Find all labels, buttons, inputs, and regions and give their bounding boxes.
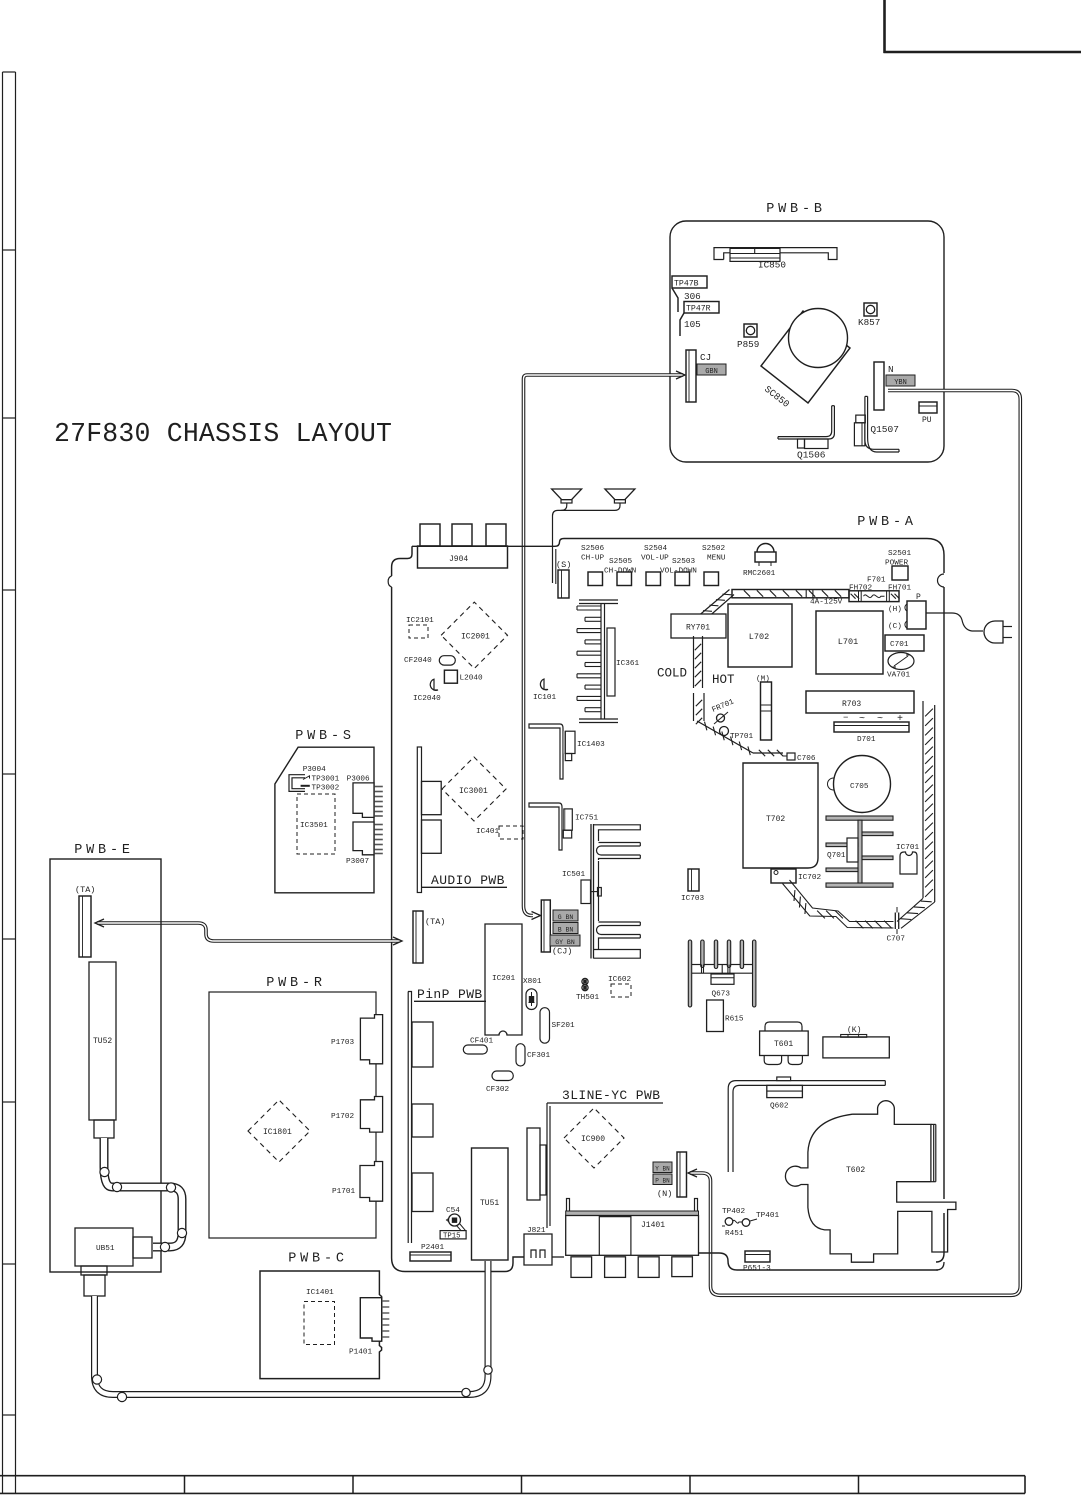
svg-text:CF302: CF302 <box>486 1086 509 1094</box>
svg-text:P859: P859 <box>737 339 759 350</box>
svg-text:IC401: IC401 <box>476 828 499 836</box>
svg-text:P2401: P2401 <box>421 1244 444 1252</box>
svg-text:R615: R615 <box>725 1016 744 1024</box>
svg-text:S2504: S2504 <box>644 545 667 553</box>
svg-text:P1701: P1701 <box>332 1188 355 1196</box>
svg-text:105: 105 <box>684 319 701 330</box>
svg-text:P651-3: P651-3 <box>743 1265 771 1273</box>
svg-text:Q1506: Q1506 <box>797 450 826 461</box>
svg-text:HOT: HOT <box>712 673 735 687</box>
svg-text:J1401: J1401 <box>641 1221 665 1230</box>
svg-text:+: + <box>897 714 903 725</box>
svg-text:X801: X801 <box>523 978 542 986</box>
svg-text:IC602: IC602 <box>608 976 631 984</box>
svg-text:TU51: TU51 <box>480 1199 499 1208</box>
svg-text:(S): (S) <box>556 560 571 570</box>
svg-text:TP47R: TP47R <box>686 305 711 314</box>
svg-text:PinP PWB: PinP PWB <box>417 987 483 1002</box>
svg-text:GY BN: GY BN <box>555 939 575 946</box>
svg-text:(K): (K) <box>847 1026 861 1035</box>
svg-text:P3007: P3007 <box>346 858 369 866</box>
svg-text:IC1403: IC1403 <box>577 741 605 749</box>
svg-text:Q673: Q673 <box>712 991 731 999</box>
svg-text:IC900: IC900 <box>581 1135 605 1144</box>
svg-text:(N): (N) <box>657 1189 672 1199</box>
svg-text:L702: L702 <box>749 632 769 642</box>
svg-text:K857: K857 <box>858 317 880 328</box>
svg-text:TP47B: TP47B <box>674 280 699 289</box>
svg-text:IC702: IC702 <box>798 874 821 882</box>
svg-text:IC1801: IC1801 <box>263 1128 292 1137</box>
svg-text:(TA): (TA) <box>75 885 95 895</box>
svg-text:S2501: S2501 <box>888 550 911 558</box>
svg-text:VA701: VA701 <box>887 672 910 680</box>
svg-text:IC3501: IC3501 <box>300 822 328 830</box>
svg-text:(C): (C) <box>888 623 902 631</box>
svg-text:T602: T602 <box>846 1166 865 1175</box>
svg-text:Q602: Q602 <box>770 1103 789 1111</box>
svg-text:S2505: S2505 <box>609 558 632 566</box>
svg-text:Q1507: Q1507 <box>870 424 899 435</box>
svg-text:(CJ): (CJ) <box>552 947 572 957</box>
svg-text:L701: L701 <box>838 637 858 647</box>
svg-text:IC201: IC201 <box>492 975 515 983</box>
svg-text:IC501: IC501 <box>562 871 585 879</box>
svg-text:PWB-R: PWB-R <box>266 976 326 991</box>
svg-text:IC361: IC361 <box>616 660 639 668</box>
svg-text:TP15: TP15 <box>443 1233 461 1241</box>
svg-text:P3004: P3004 <box>303 766 326 774</box>
svg-text:PWB-S: PWB-S <box>295 729 355 744</box>
svg-text:IC2101: IC2101 <box>406 617 434 625</box>
svg-text:IC751: IC751 <box>575 814 598 822</box>
svg-text:4A-125V: 4A-125V <box>810 599 843 607</box>
svg-text:G BN: G BN <box>558 914 574 921</box>
svg-text:P1703: P1703 <box>331 1039 354 1047</box>
svg-text:MENU: MENU <box>707 555 726 563</box>
svg-text:~: ~ <box>859 714 865 725</box>
svg-text:IC3001: IC3001 <box>459 787 488 796</box>
svg-text:IC1401: IC1401 <box>306 1289 334 1297</box>
svg-text:Q701: Q701 <box>827 852 846 860</box>
svg-text:S2503: S2503 <box>672 558 695 566</box>
svg-text:TH501: TH501 <box>576 994 599 1002</box>
svg-text:P3006: P3006 <box>347 775 370 783</box>
svg-text:PWB-B: PWB-B <box>766 202 826 217</box>
svg-text:IC701: IC701 <box>896 844 919 852</box>
svg-text:L2040: L2040 <box>460 675 483 683</box>
svg-text:S2506: S2506 <box>581 545 604 553</box>
svg-text:C701: C701 <box>890 641 909 649</box>
svg-text:S2502: S2502 <box>702 545 725 553</box>
svg-text:~: ~ <box>877 714 883 725</box>
svg-text:TP401: TP401 <box>756 1212 779 1220</box>
svg-text:R703: R703 <box>842 700 861 709</box>
svg-text:TP3001: TP3001 <box>312 775 340 783</box>
svg-text:C705: C705 <box>850 783 869 791</box>
svg-text:RMC2601: RMC2601 <box>743 570 776 578</box>
svg-text:TP701: TP701 <box>730 733 753 741</box>
svg-text:3LINE-YC PWB: 3LINE-YC PWB <box>562 1088 660 1103</box>
svg-text:P BN: P BN <box>655 1177 670 1184</box>
svg-text:T702: T702 <box>766 815 785 824</box>
svg-text:PWB-C: PWB-C <box>288 1252 348 1267</box>
svg-text:CF401: CF401 <box>470 1038 493 1046</box>
svg-text:27F830 CHASSIS LAYOUT: 27F830 CHASSIS LAYOUT <box>54 419 392 449</box>
svg-text:COLD: COLD <box>657 667 687 681</box>
svg-text:PWB-A: PWB-A <box>857 515 917 530</box>
svg-text:CF301: CF301 <box>527 1052 550 1060</box>
svg-text:TP3002: TP3002 <box>312 784 340 792</box>
svg-text:TP402: TP402 <box>722 1208 745 1216</box>
svg-text:AUDIO PWB: AUDIO PWB <box>431 873 505 888</box>
svg-text:GBN: GBN <box>705 368 718 376</box>
svg-text:Y BN: Y BN <box>655 1165 670 1172</box>
svg-text:P1401: P1401 <box>349 1349 372 1357</box>
svg-text:D701: D701 <box>857 736 876 744</box>
svg-text:UB51: UB51 <box>96 1245 115 1253</box>
svg-text:CH-UP: CH-UP <box>581 555 604 563</box>
svg-text:P1702: P1702 <box>331 1113 354 1121</box>
svg-text:CJ: CJ <box>700 352 711 363</box>
svg-text:SF201: SF201 <box>552 1022 575 1030</box>
svg-text:RY701: RY701 <box>686 624 710 633</box>
svg-text:N: N <box>888 364 894 375</box>
svg-text:C707: C707 <box>887 936 906 944</box>
svg-text:IC703: IC703 <box>681 895 704 903</box>
svg-text:J904: J904 <box>449 555 468 564</box>
svg-text:PWB-E: PWB-E <box>74 843 134 858</box>
svg-text:IC101: IC101 <box>533 694 556 702</box>
svg-text:IC850: IC850 <box>758 260 786 271</box>
svg-text:TU52: TU52 <box>93 1037 112 1046</box>
svg-text:PU: PU <box>922 416 932 425</box>
svg-text:YBN: YBN <box>894 379 907 387</box>
svg-text:VOL-UP: VOL-UP <box>641 555 669 563</box>
svg-text:IC2001: IC2001 <box>461 633 490 642</box>
svg-text:B BN: B BN <box>558 926 574 933</box>
svg-text:(H): (H) <box>888 606 902 614</box>
svg-text:C706: C706 <box>797 755 816 763</box>
svg-text:CF2040: CF2040 <box>404 657 432 665</box>
svg-text:F701: F701 <box>867 577 886 585</box>
svg-text:IC2040: IC2040 <box>413 695 441 703</box>
svg-text:(TA): (TA) <box>425 917 445 927</box>
svg-text:T601: T601 <box>774 1040 793 1049</box>
svg-text:R451: R451 <box>725 1230 744 1238</box>
svg-text:306: 306 <box>684 291 701 302</box>
